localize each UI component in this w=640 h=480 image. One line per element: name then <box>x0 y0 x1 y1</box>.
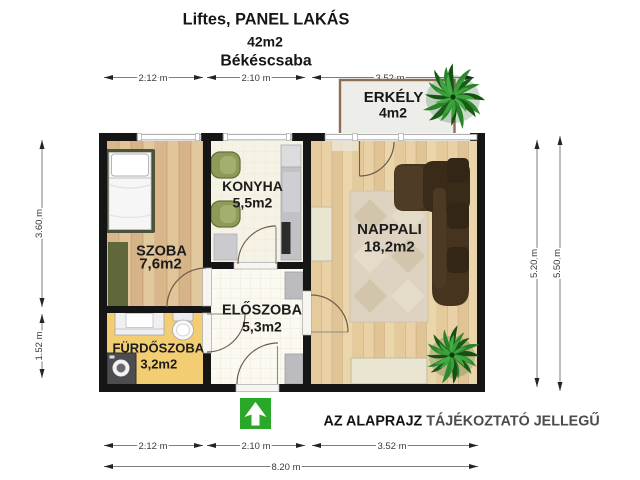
svg-text:7,6m2: 7,6m2 <box>139 256 182 273</box>
svg-text:3.52 m: 3.52 m <box>377 441 406 452</box>
svg-text:NAPPALI: NAPPALI <box>357 221 422 238</box>
svg-text:KONYHA: KONYHA <box>222 178 283 194</box>
svg-text:8.20 m: 8.20 m <box>271 462 300 473</box>
svg-text:18,2m2: 18,2m2 <box>364 239 415 256</box>
svg-text:5.20 m: 5.20 m <box>529 249 540 278</box>
svg-text:2.12 m: 2.12 m <box>138 441 167 452</box>
svg-text:ERKÉLY: ERKÉLY <box>364 89 423 106</box>
svg-text:42m2: 42m2 <box>247 34 283 50</box>
svg-text:3.60 m: 3.60 m <box>34 209 45 238</box>
svg-text:5,3m2: 5,3m2 <box>242 319 282 335</box>
svg-text:FÜRDŐSZOBA: FÜRDŐSZOBA <box>112 341 204 356</box>
svg-text:5,5m2: 5,5m2 <box>233 195 273 211</box>
svg-text:3,2m2: 3,2m2 <box>140 357 177 372</box>
svg-text:ELŐSZOBA: ELŐSZOBA <box>222 301 303 319</box>
svg-text:5.50 m: 5.50 m <box>552 249 563 278</box>
svg-text:1.52 m: 1.52 m <box>34 331 45 360</box>
svg-text:Békéscsaba: Békéscsaba <box>220 53 312 70</box>
svg-text:4m2: 4m2 <box>379 105 407 121</box>
svg-text:2.10 m: 2.10 m <box>241 441 270 452</box>
svg-text:2.10 m: 2.10 m <box>241 73 270 84</box>
svg-text:2.12 m: 2.12 m <box>138 73 167 84</box>
svg-text:AZ ALAPRAJZ TÁJÉKOZTATÓ JELLEG: AZ ALAPRAJZ TÁJÉKOZTATÓ JELLEGŰ <box>324 412 600 430</box>
svg-text:Liftes, PANEL LAKÁS: Liftes, PANEL LAKÁS <box>183 10 350 29</box>
